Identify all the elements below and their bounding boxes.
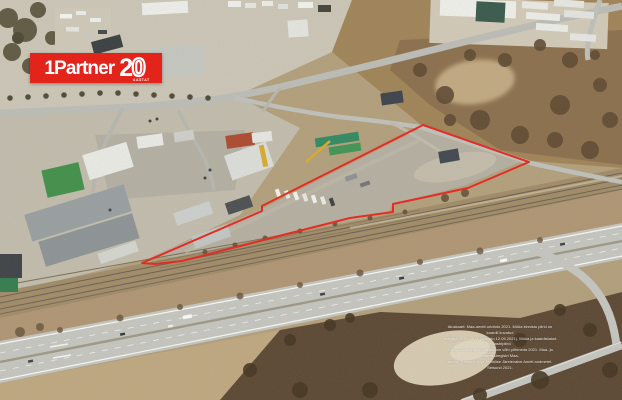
attribution-line: Aluskaart: Maa-ameti ortofoto 2021. Müüa… — [443, 324, 557, 336]
logo-years-label: AASTAT — [133, 78, 150, 82]
attribution-line: 2021–2025 ning informatsioon võib põhine… — [443, 347, 557, 359]
map-attribution: Aluskaart: Maa-ameti ortofoto 2021. Müüa… — [443, 324, 557, 370]
aerial-map-image: 1Partner 2 0 AASTAT Aluskaart: Maa-ameti… — [0, 0, 622, 400]
attribution-line: ameti, Transpordi- ja Tehnilise Järeleva… — [443, 359, 557, 371]
attribution-line: seisuga 01.05.2021 (ortofoto 12.05.2021)… — [443, 336, 557, 348]
logo-brand-text: 1Partner — [44, 59, 114, 78]
logo-years: 2 0 AASTAT — [119, 57, 147, 80]
logo-banner: 1Partner 2 0 AASTAT — [30, 53, 162, 83]
logo-years-digit-2: 2 — [119, 57, 131, 80]
logo-years-digit-0: 0 — [132, 57, 146, 80]
